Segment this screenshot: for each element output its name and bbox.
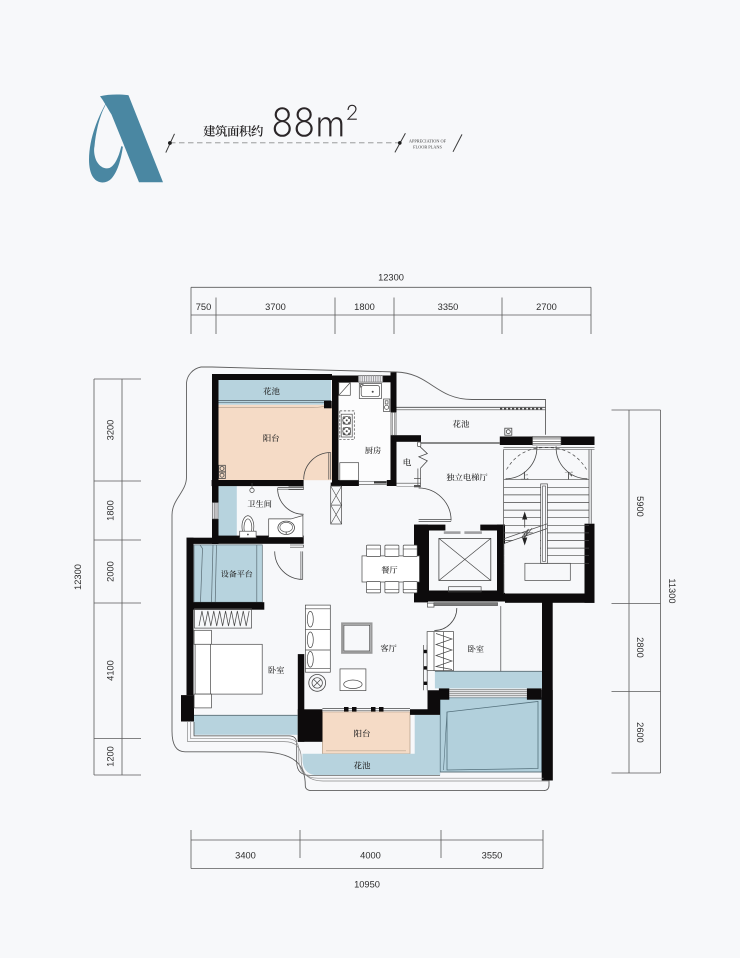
svg-text:3350: 3350 xyxy=(438,302,459,312)
svg-text:2000: 2000 xyxy=(105,561,115,582)
svg-text:4000: 4000 xyxy=(360,851,381,861)
svg-text:3200: 3200 xyxy=(105,420,115,441)
svg-text:1800: 1800 xyxy=(105,500,115,521)
svg-text:750: 750 xyxy=(196,302,212,312)
svg-text:12300: 12300 xyxy=(73,564,83,590)
svg-text:2600: 2600 xyxy=(635,722,645,743)
svg-text:11300: 11300 xyxy=(667,578,677,603)
svg-text:2700: 2700 xyxy=(536,302,557,312)
svg-text:3550: 3550 xyxy=(482,851,503,861)
svg-text:5900: 5900 xyxy=(635,496,645,517)
svg-text:10950: 10950 xyxy=(354,880,380,890)
svg-text:1800: 1800 xyxy=(354,302,375,312)
svg-text:3700: 3700 xyxy=(265,302,286,312)
svg-text:4100: 4100 xyxy=(105,660,115,681)
svg-text:1200: 1200 xyxy=(105,746,115,767)
svg-text:APPRECIATION OF: APPRECIATION OF xyxy=(409,139,447,144)
svg-text:2800: 2800 xyxy=(635,637,645,658)
svg-text:12300: 12300 xyxy=(378,273,404,283)
svg-text:3400: 3400 xyxy=(235,851,256,861)
svg-text:FLOOR PLANS: FLOOR PLANS xyxy=(413,144,442,149)
